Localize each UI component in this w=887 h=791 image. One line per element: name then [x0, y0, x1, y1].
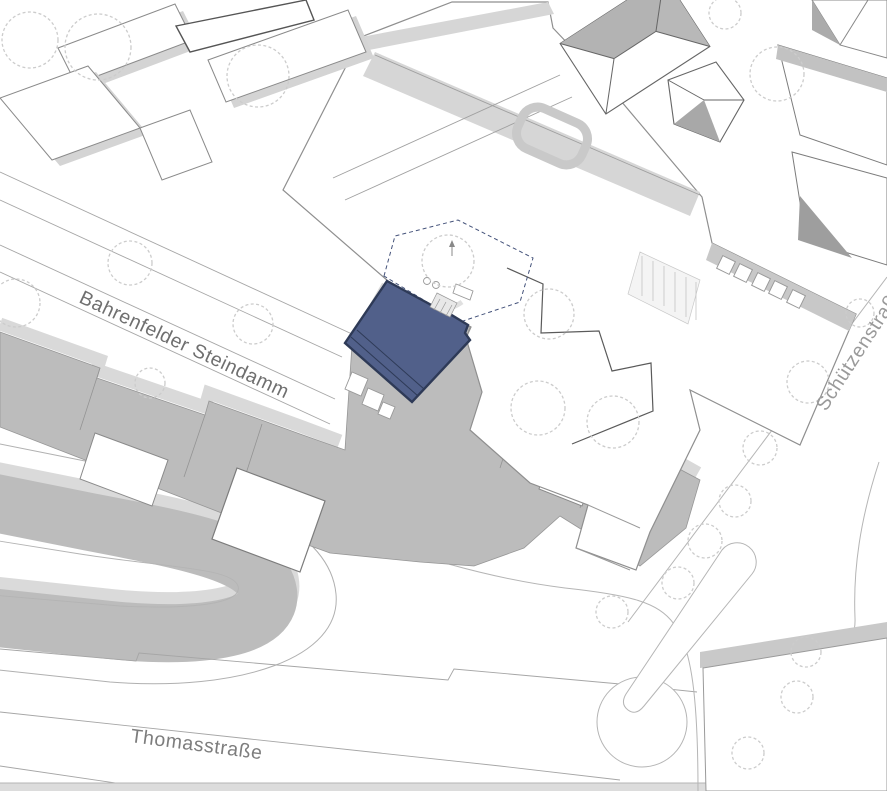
site-plan-canvas: Bahrenfelder Steindamm Thomasstraße Schü… — [0, 0, 887, 791]
site-plan-page: Bahrenfelder Steindamm Thomasstraße Schü… — [0, 0, 887, 791]
